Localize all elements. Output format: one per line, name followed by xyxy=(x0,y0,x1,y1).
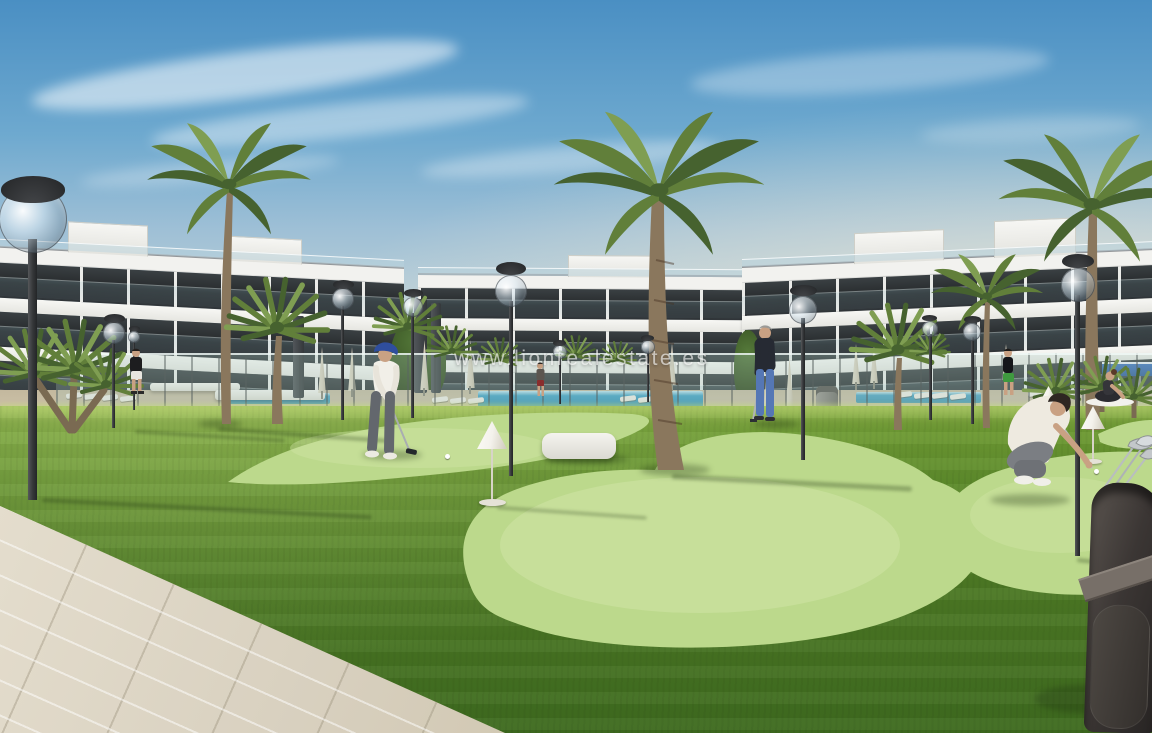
lamp-cap xyxy=(1062,254,1094,268)
lamp-pole xyxy=(112,340,115,428)
person-standing-golfer xyxy=(742,323,797,433)
golf-ball xyxy=(445,454,450,459)
lamp-cap xyxy=(553,340,566,346)
person-by-green xyxy=(996,348,1020,400)
lamp-cap xyxy=(922,315,937,321)
lamp-pole xyxy=(509,301,513,476)
white-bench xyxy=(542,433,616,459)
lamp-pole xyxy=(28,239,37,500)
lamp-cap xyxy=(404,289,423,297)
watermark-text: www.lionrealestate.es xyxy=(454,347,710,371)
scene: www.lionrealestate.es xyxy=(0,0,1152,733)
golf-bag-pocket xyxy=(1089,604,1151,730)
lamp-cap xyxy=(964,316,981,323)
person-golfer-putting xyxy=(346,338,431,468)
person-yoga xyxy=(1084,366,1136,408)
lamp-globe xyxy=(922,321,938,337)
lamp-globe xyxy=(495,275,527,307)
person-walking xyxy=(124,348,150,396)
golf-bag xyxy=(1084,482,1152,733)
lamp-pole xyxy=(971,337,974,424)
marker-pole xyxy=(491,449,493,501)
lamp-globe xyxy=(403,297,423,317)
lamp-cap xyxy=(790,285,817,296)
lamp-globe xyxy=(332,288,354,310)
lamp-globe xyxy=(103,322,125,344)
marker-base xyxy=(479,499,506,506)
lamp-cap xyxy=(104,314,125,323)
lamp-globe xyxy=(963,323,981,341)
lamp-cap xyxy=(496,262,526,275)
lamp-pole xyxy=(801,318,805,460)
lamp-cap xyxy=(1,176,65,203)
lamp-globe xyxy=(1061,268,1095,302)
lamp-cap xyxy=(333,280,354,289)
lamp-pole xyxy=(929,334,932,420)
lamp-cap xyxy=(641,335,654,341)
lamp-pole xyxy=(341,306,344,420)
lamp-globe xyxy=(789,296,817,324)
lamp-cap xyxy=(129,326,140,331)
lamp-globe xyxy=(128,331,140,343)
